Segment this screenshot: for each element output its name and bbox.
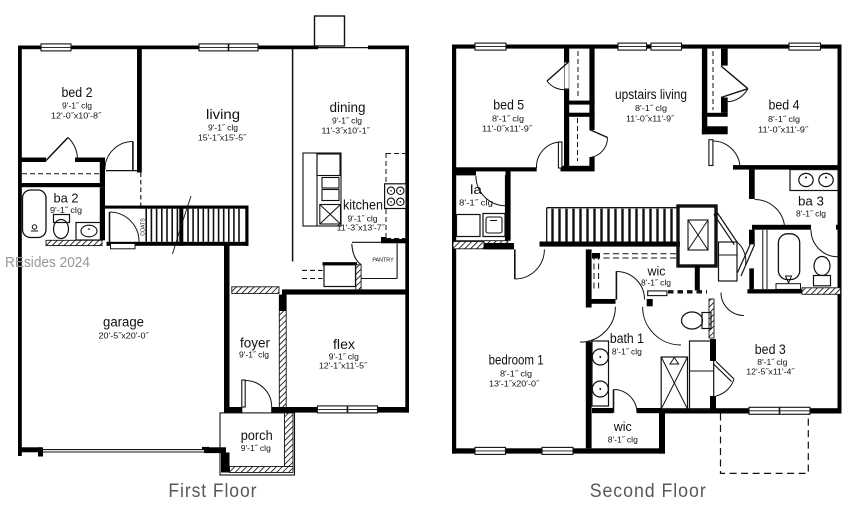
svg-text:bed 2: bed 2 (62, 85, 93, 100)
svg-text:la: la (470, 183, 482, 197)
svg-text:11'-0˝x11'-9˝: 11'-0˝x11'-9˝ (626, 115, 675, 124)
svg-text:bedroom 1: bedroom 1 (489, 353, 544, 368)
svg-text:ba 2: ba 2 (54, 192, 79, 206)
svg-text:upstairs living: upstairs living (615, 87, 687, 102)
svg-text:11'-0˝x11'-9˝: 11'-0˝x11'-9˝ (758, 126, 810, 135)
svg-text:8'-1˝ clg: 8'-1˝ clg (492, 115, 524, 124)
svg-text:8'-1˝ clg: 8'-1˝ clg (459, 199, 493, 208)
svg-text:bath 1: bath 1 (610, 331, 644, 346)
svg-text:PANTRY: PANTRY (372, 258, 394, 264)
svg-text:ba 3: ba 3 (798, 195, 824, 209)
svg-text:kitchen: kitchen (343, 198, 383, 213)
svg-text:12'-1˝x11'-5˝: 12'-1˝x11'-5˝ (319, 362, 368, 371)
svg-text:living: living (206, 107, 240, 122)
svg-text:foyer: foyer (240, 336, 271, 351)
svg-text:8'-1˝ clg: 8'-1˝ clg (757, 358, 787, 367)
svg-text:11'-3˝x13'-7˝: 11'-3˝x13'-7˝ (337, 224, 386, 233)
svg-text:Second Floor: Second Floor (590, 481, 707, 502)
svg-text:9'-1˝ clg: 9'-1˝ clg (239, 351, 269, 360)
svg-text:bed 5: bed 5 (493, 98, 524, 113)
svg-text:9'-1˝ clg: 9'-1˝ clg (348, 215, 378, 224)
svg-text:8'-1˝ clg: 8'-1˝ clg (641, 279, 671, 288)
svg-text:9'-1˝ clg: 9'-1˝ clg (332, 117, 362, 126)
svg-text:8'-1˝ clg: 8'-1˝ clg (768, 115, 800, 124)
svg-text:8'-1˝ clg: 8'-1˝ clg (796, 210, 826, 219)
svg-text:20'-5˝x20'-0˝: 20'-5˝x20'-0˝ (99, 332, 151, 341)
svg-text:8'-1˝ clg: 8'-1˝ clg (612, 348, 642, 357)
svg-text:bed 3: bed 3 (755, 342, 786, 357)
svg-text:wic: wic (647, 265, 666, 279)
svg-text:11'-3˝x10'-1˝: 11'-3˝x10'-1˝ (322, 127, 371, 136)
svg-text:9'-1˝ clg: 9'-1˝ clg (62, 102, 92, 111)
svg-text:8'-1˝ clg: 8'-1˝ clg (500, 370, 532, 379)
svg-text:wic: wic (613, 420, 632, 434)
svg-text:15'-1˝x15'-5˝: 15'-1˝x15'-5˝ (198, 134, 247, 143)
svg-text:First Floor: First Floor (168, 481, 257, 502)
svg-text:9'-1˝ clg: 9'-1˝ clg (50, 206, 82, 215)
svg-text:dining: dining (330, 100, 366, 115)
svg-text:REsides 2024: REsides 2024 (5, 255, 90, 271)
svg-text:8'-1˝ clg: 8'-1˝ clg (608, 436, 638, 445)
svg-text:9'-1˝ clg: 9'-1˝ clg (329, 353, 359, 362)
svg-text:13'-1˝x20'-0˝: 13'-1˝x20'-0˝ (489, 380, 541, 389)
svg-text:garage: garage (103, 315, 144, 330)
svg-text:11'-0˝x11'-9˝: 11'-0˝x11'-9˝ (482, 125, 534, 134)
svg-text:12'-0˝x10'-8˝: 12'-0˝x10'-8˝ (51, 112, 103, 121)
svg-text:COATS: COATS (141, 218, 147, 236)
svg-text:porch: porch (241, 428, 273, 443)
svg-text:9'-1˝ clg: 9'-1˝ clg (241, 444, 271, 453)
svg-text:9'-1˝ clg: 9'-1˝ clg (208, 124, 238, 133)
svg-text:flex: flex (333, 337, 355, 352)
svg-text:12'-5˝x11'-4˝: 12'-5˝x11'-4˝ (746, 368, 795, 377)
svg-text:8'-1˝ clg: 8'-1˝ clg (635, 104, 667, 113)
svg-text:bed 4: bed 4 (769, 98, 800, 113)
